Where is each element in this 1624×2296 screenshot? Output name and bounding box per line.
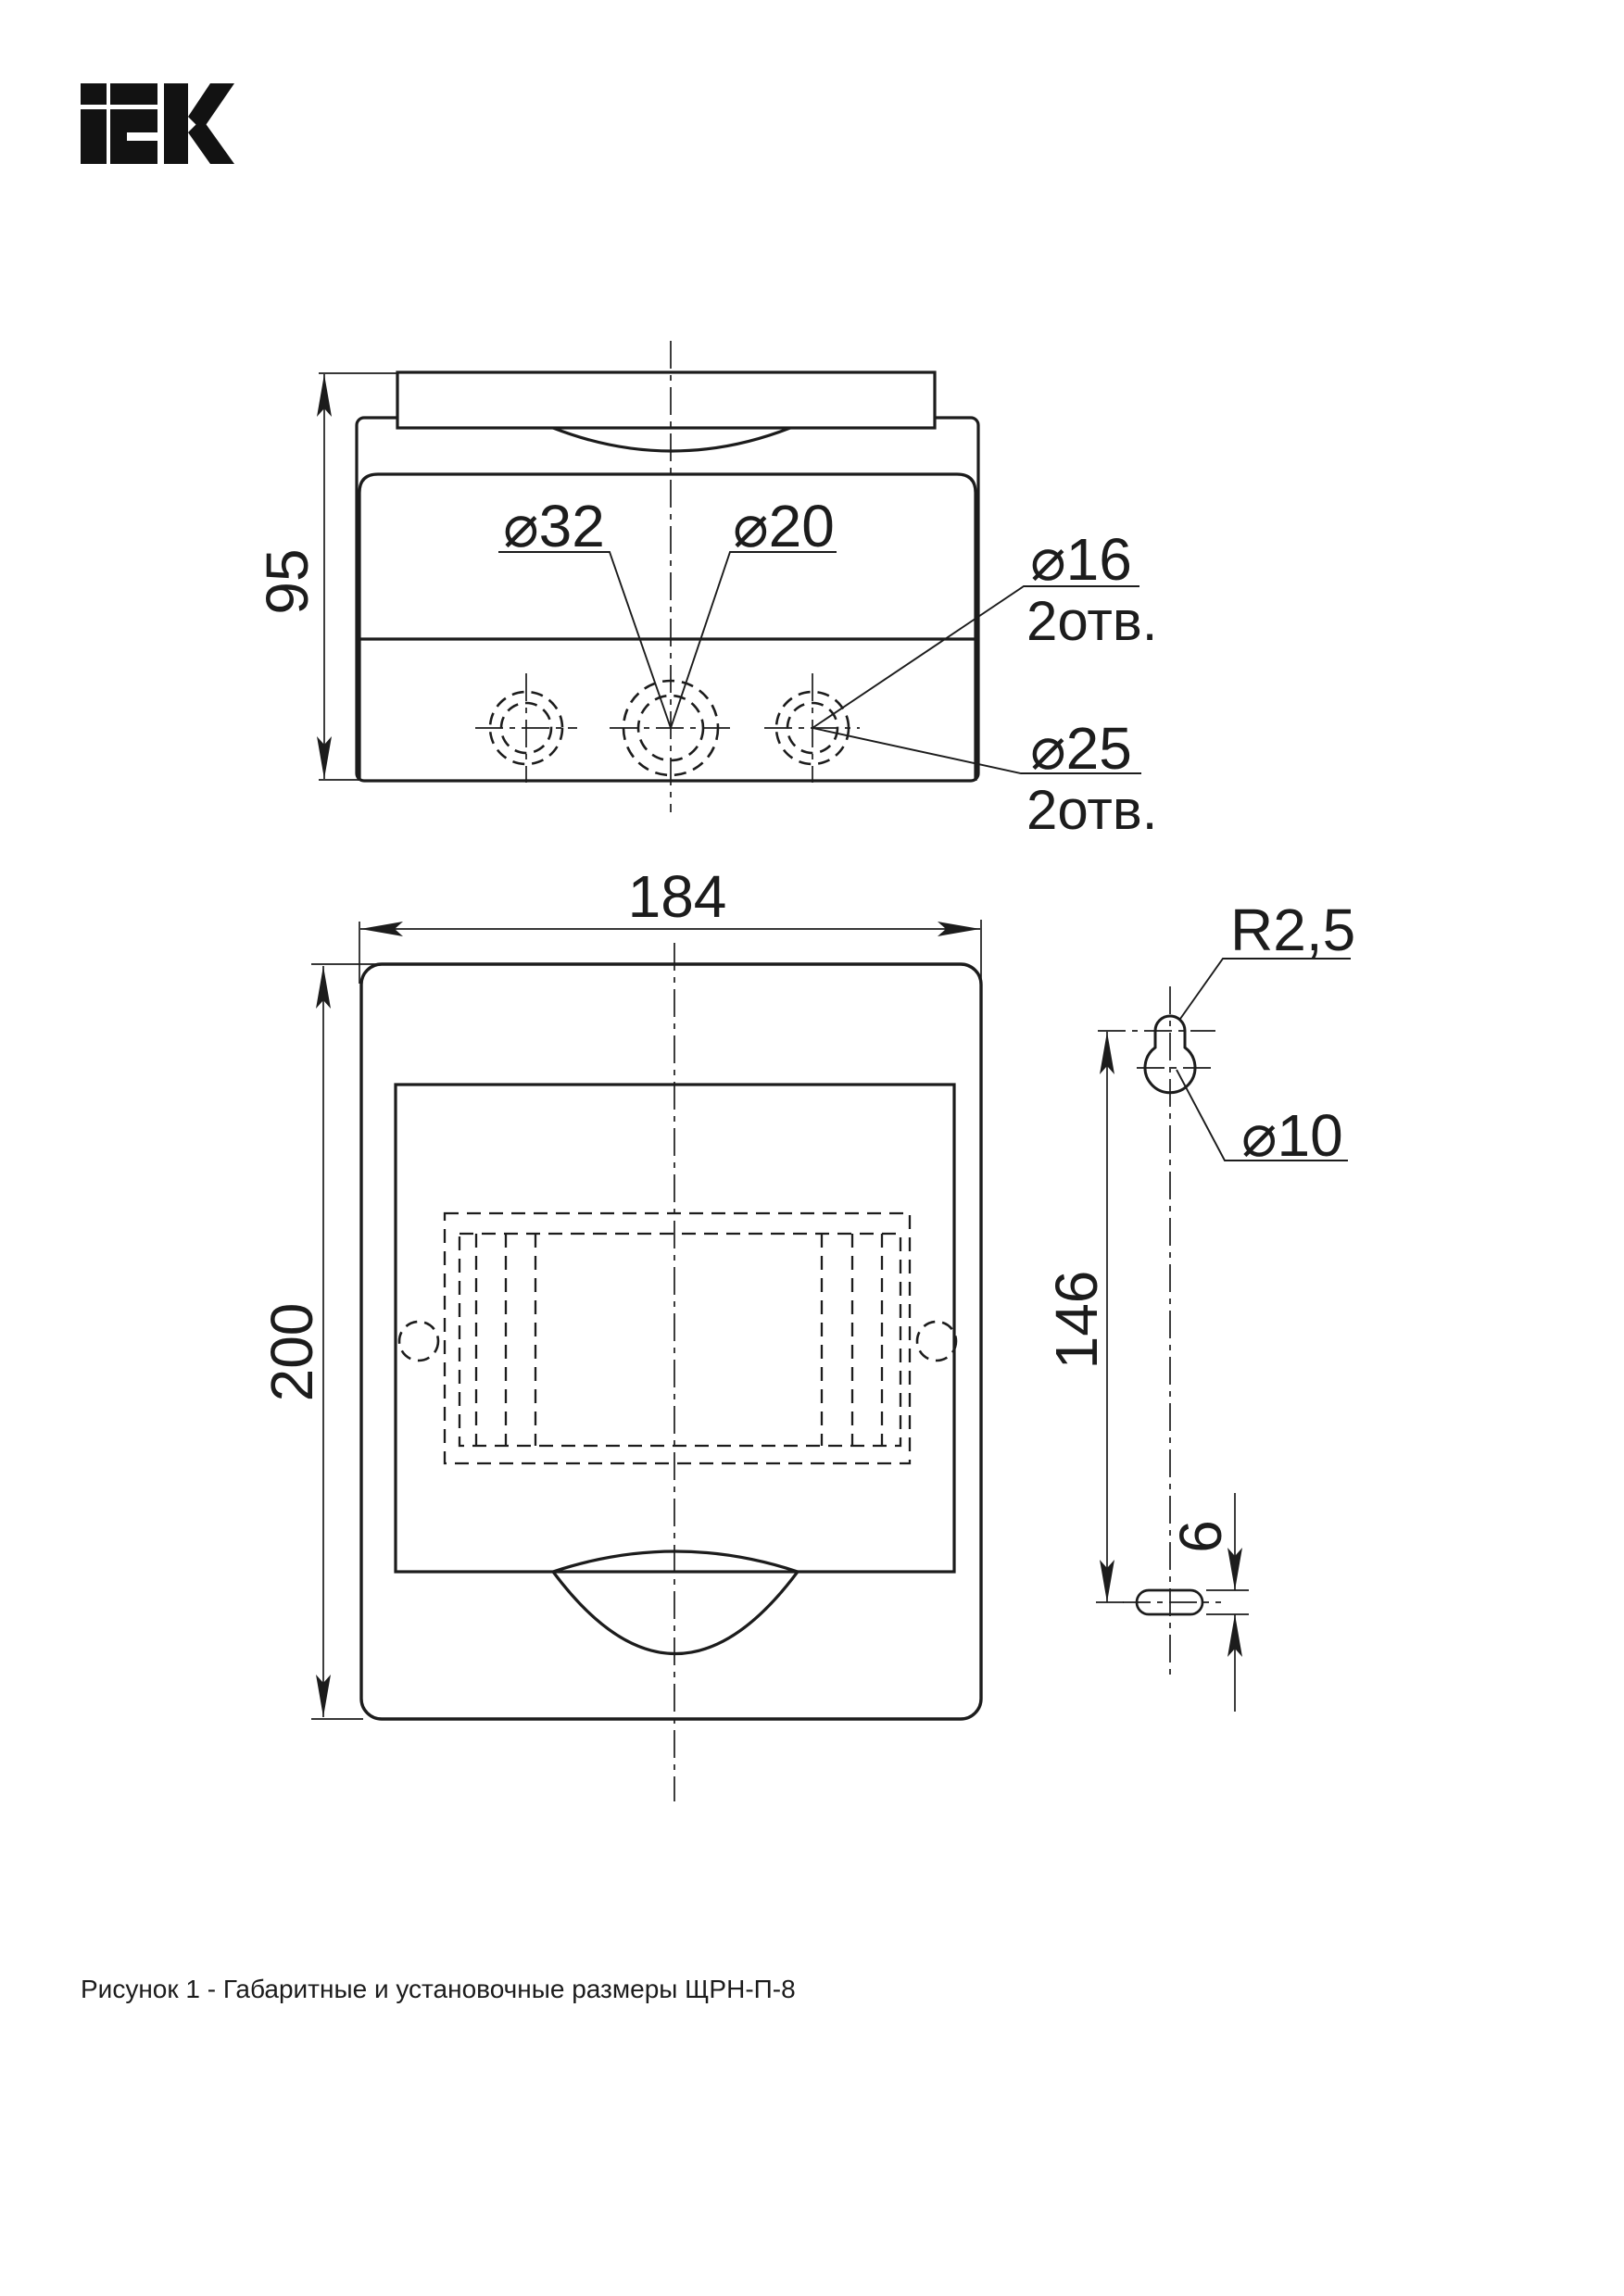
front-view: 184 200 <box>258 863 981 1801</box>
label-d20: ⌀20 <box>733 493 835 559</box>
label-d16-qty: 2отв. <box>1026 590 1157 652</box>
drawing-page: 95 ⌀32 ⌀20 ⌀16 2отв. ⌀25 2отв. <box>0 0 1624 2296</box>
logo-shape <box>110 109 157 132</box>
logo-shape <box>110 141 157 164</box>
label-d10: ⌀10 <box>1241 1102 1343 1169</box>
dim-text-200: 200 <box>258 1303 325 1402</box>
label-d32: ⌀32 <box>503 493 605 559</box>
dim-text-184: 184 <box>628 863 727 930</box>
leader-r25 <box>1180 959 1351 1019</box>
logo-shape <box>110 83 157 105</box>
logo-shape <box>164 83 188 164</box>
dim-text-95: 95 <box>254 548 321 614</box>
logo-shape <box>188 119 234 164</box>
dim-text-146: 146 <box>1043 1271 1110 1370</box>
enclosure-door-top <box>397 372 935 428</box>
label-r25: R2,5 <box>1230 897 1355 963</box>
label-d25: ⌀25 <box>1030 715 1132 782</box>
label-d25-qty: 2отв. <box>1026 779 1157 841</box>
dim-text-6: 6 <box>1167 1520 1234 1553</box>
label-d16: ⌀16 <box>1030 526 1132 593</box>
enclosure-body-top <box>357 418 978 781</box>
top-view: 95 ⌀32 ⌀20 ⌀16 2отв. ⌀25 2отв. <box>254 341 1157 841</box>
logo-shape <box>81 109 107 164</box>
figure-caption: Рисунок 1 - Габаритные и установочные ра… <box>81 1975 796 2003</box>
technical-drawing: 95 ⌀32 ⌀20 ⌀16 2отв. ⌀25 2отв. <box>0 0 1624 2296</box>
logo-shape <box>81 83 107 105</box>
logo-shape <box>188 83 234 131</box>
mounting-detail: R2,5 ⌀10 146 6 <box>1043 897 1355 1712</box>
enclosure-front <box>361 964 981 1719</box>
logo-shape <box>110 132 127 141</box>
iek-logo <box>81 83 234 164</box>
